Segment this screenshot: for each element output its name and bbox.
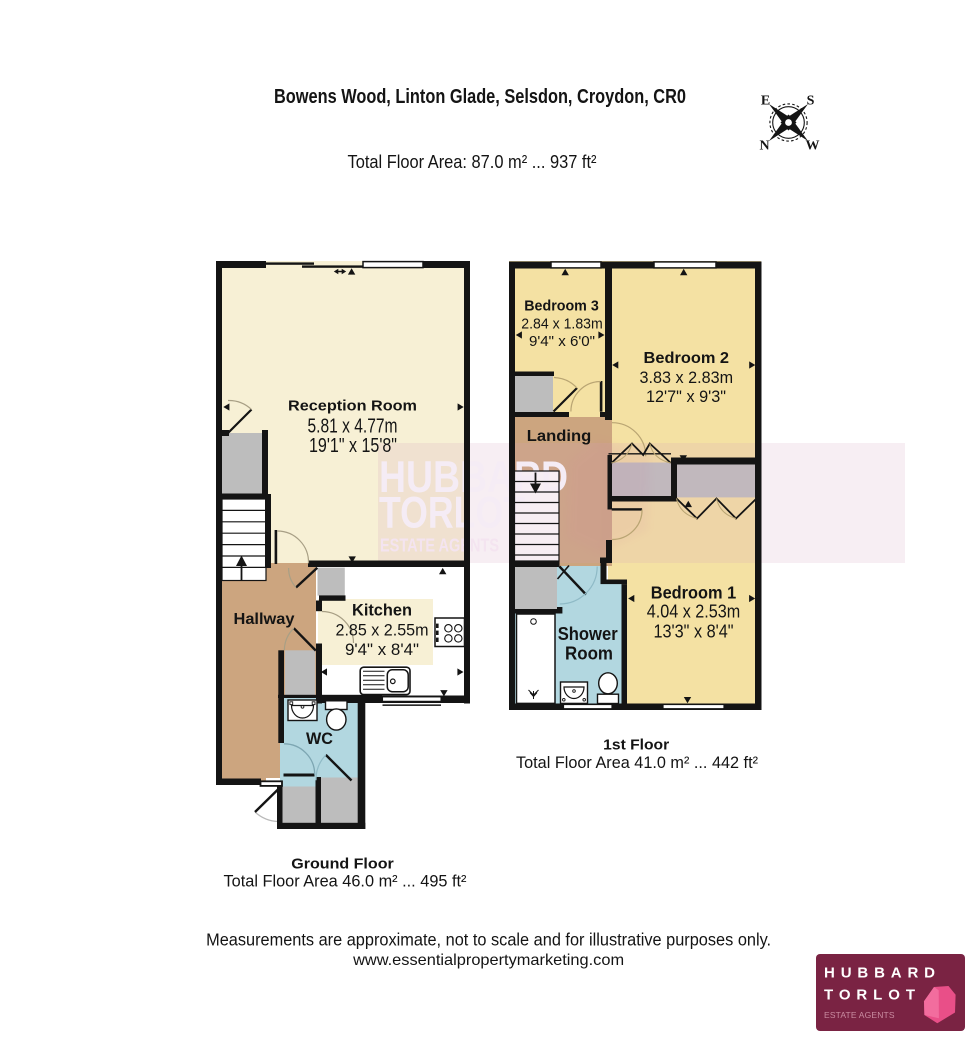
svg-text:Reception Room: Reception Room (288, 399, 417, 415)
svg-text:19'1" x 15'8": 19'1" x 15'8" (309, 435, 397, 457)
svg-text:Total Floor Area 41.0 m² ... 4: Total Floor Area 41.0 m² ... 442 ft² (516, 754, 758, 772)
svg-text:Kitchen: Kitchen (352, 601, 412, 619)
svg-text:N: N (759, 139, 769, 154)
svg-text:Hallway: Hallway (234, 611, 295, 628)
svg-text:Bedroom 3: Bedroom 3 (524, 298, 599, 315)
svg-text:12'7" x 9'3": 12'7" x 9'3" (646, 388, 726, 406)
svg-text:Bedroom 2: Bedroom 2 (644, 350, 730, 367)
svg-text:1st Floor: 1st Floor (603, 737, 669, 754)
svg-text:Room: Room (565, 642, 613, 663)
svg-text:3.83 x 2.83m: 3.83 x 2.83m (640, 369, 734, 387)
svg-text:13'3" x 8'4": 13'3" x 8'4" (654, 620, 734, 641)
svg-text:E: E (761, 94, 770, 109)
svg-text:Shower: Shower (558, 623, 618, 644)
svg-text:2.85 x 2.55m: 2.85 x 2.55m (336, 622, 429, 640)
svg-text:Total Floor Area: 87.0 m² ...: Total Floor Area: 87.0 m² ... 937 ft² (348, 151, 597, 172)
svg-text:WC: WC (306, 730, 333, 748)
svg-text:Ground Floor: Ground Floor (291, 855, 394, 872)
svg-text:Total Floor Area 46.0 m² ... 4: Total Floor Area 46.0 m² ... 495 ft² (224, 873, 467, 891)
svg-text:www.essentialpropertymarketing: www.essentialpropertymarketing.com (352, 952, 624, 969)
svg-text:ESTATE AGENTS: ESTATE AGENTS (380, 535, 499, 556)
svg-text:Measurements are approximate,: Measurements are approximate, not to sca… (206, 929, 771, 949)
svg-text:9'4" x 6'0": 9'4" x 6'0" (529, 333, 595, 350)
svg-text:Bowens Wood, Linton Glade, Sel: Bowens Wood, Linton Glade, Selsdon, Croy… (274, 86, 686, 108)
svg-text:9'4" x 8'4": 9'4" x 8'4" (345, 641, 419, 659)
svg-text:Landing: Landing (527, 428, 592, 445)
svg-text:ESTATE AGENTS: ESTATE AGENTS (824, 1010, 895, 1020)
svg-text:TORLOT: TORLOT (379, 488, 525, 537)
svg-text:S: S (807, 94, 815, 109)
svg-text:2.84 x 1.83m: 2.84 x 1.83m (521, 315, 603, 332)
svg-text:4.04 x 2.53m: 4.04 x 2.53m (647, 600, 741, 621)
svg-text:W: W (806, 139, 820, 154)
